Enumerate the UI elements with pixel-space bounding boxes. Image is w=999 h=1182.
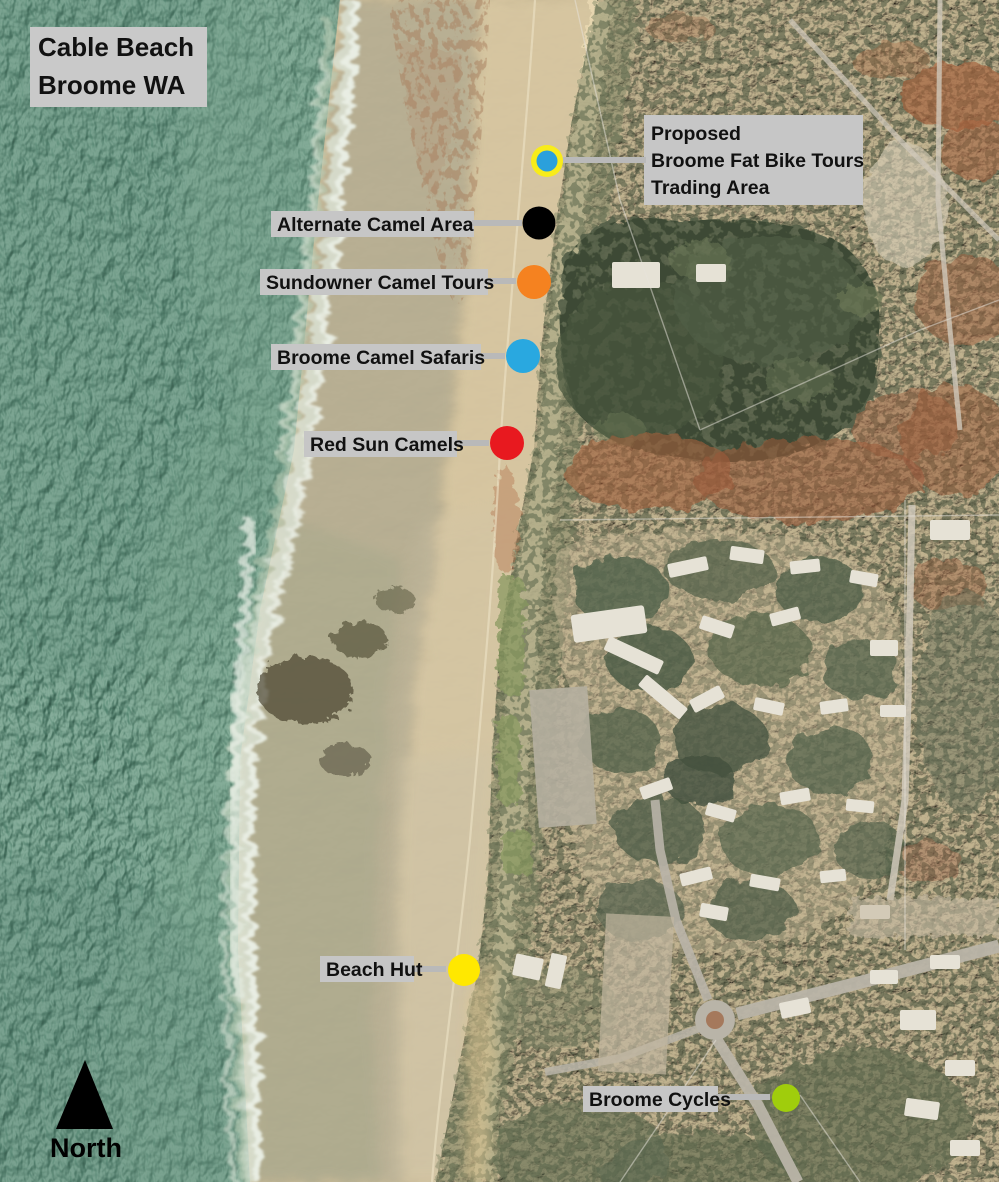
- svg-text:Broome Cycles: Broome Cycles: [589, 1089, 731, 1111]
- svg-text:Cable Beach: Cable Beach: [38, 32, 194, 62]
- svg-text:Broome Fat Bike Tours: Broome Fat Bike Tours: [651, 150, 864, 172]
- svg-text:North: North: [50, 1133, 122, 1163]
- svg-text:Sundowner Camel Tours: Sundowner Camel Tours: [266, 272, 494, 294]
- svg-text:Alternate Camel Area: Alternate Camel Area: [277, 214, 474, 236]
- svg-text:Trading Area: Trading Area: [651, 177, 770, 199]
- svg-text:Broome WA: Broome WA: [38, 70, 186, 100]
- svg-text:Beach Hut: Beach Hut: [326, 959, 423, 981]
- svg-text:Proposed: Proposed: [651, 123, 741, 145]
- svg-text:Broome Camel Safaris: Broome Camel Safaris: [277, 347, 485, 369]
- svg-text:Red Sun Camels: Red Sun Camels: [310, 434, 464, 456]
